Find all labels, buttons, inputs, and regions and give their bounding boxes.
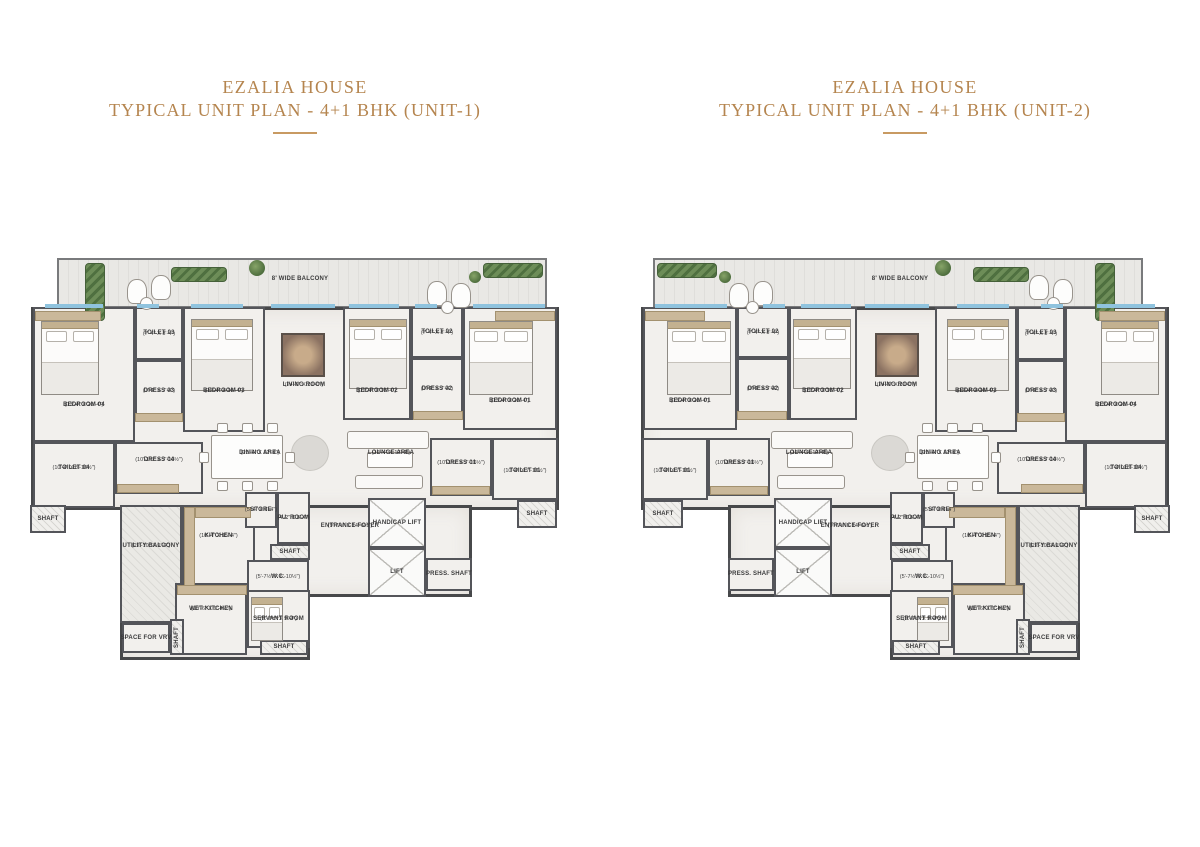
bed-part: [474, 331, 498, 342]
room-toilet-02: [411, 307, 463, 358]
bed-part: [981, 329, 1004, 340]
room-shaft-vert: [1016, 619, 1030, 655]
counter-wardrobe: [117, 484, 179, 493]
balcony-table: [746, 301, 759, 314]
balcony-chair: [451, 283, 471, 308]
room-toilet-01: [492, 438, 558, 500]
counter-wardrobe: [432, 486, 490, 495]
tv-feature-wall: [281, 333, 325, 377]
plan-subtitle: TYPICAL UNIT PLAN - 4+1 BHK (UNIT-2): [635, 99, 1175, 122]
counter-wardrobe: [495, 311, 555, 321]
bed-part: [825, 329, 846, 340]
bed-part: [470, 362, 532, 394]
dining-chair: [242, 423, 253, 433]
plan-subtitle: TYPICAL UNIT PLAN - 4+1 BHK (UNIT-1): [25, 99, 565, 122]
room-toilet-01: [642, 438, 708, 500]
window-glazing: [1097, 304, 1155, 308]
room-shaft-left: [1134, 505, 1170, 533]
room-lift: [774, 548, 832, 597]
counter-wardrobe: [1099, 311, 1165, 321]
bed: [1101, 321, 1159, 395]
dining-table: [211, 435, 283, 479]
rug: [291, 435, 329, 471]
dining-chair: [922, 423, 933, 433]
dining-chair: [267, 423, 278, 433]
dining-chair: [242, 481, 253, 491]
room-pu-room: [277, 492, 310, 544]
bed-part: [42, 322, 98, 329]
bed-part: [73, 331, 94, 342]
balcony-table: [441, 301, 454, 314]
room-shaft-right: [643, 500, 683, 528]
bed-part: [350, 358, 406, 388]
dining-chair: [972, 481, 983, 491]
window-glazing: [473, 304, 545, 308]
room-utility-balcony: [120, 505, 182, 623]
bed-part: [350, 320, 406, 327]
sofa: [771, 431, 853, 449]
window-glazing: [45, 304, 103, 308]
window-glazing: [415, 304, 437, 308]
title-divider: [273, 132, 317, 134]
tree: [249, 260, 265, 276]
coffee-table: [787, 452, 833, 468]
counter-wardrobe: [953, 585, 1023, 595]
dining-chair: [217, 423, 228, 433]
sofa: [777, 475, 845, 489]
plan-panel-unit-1: EZALIA HOUSE TYPICAL UNIT PLAN - 4+1 BHK…: [25, 0, 565, 847]
bed-part: [794, 358, 850, 388]
floor-plan-unit-2: BEDROOM 04(13'-4" X 20'-4")TOILET 03(7'-…: [635, 255, 1175, 660]
window-glazing: [655, 304, 727, 308]
counter-wardrobe: [35, 311, 101, 321]
floor-plan-sheet: { "colors":{"title_gold":"#b5854f","wall…: [0, 0, 1200, 847]
balcony-chair: [151, 275, 171, 300]
bed-part: [252, 598, 282, 605]
room-toilet-03: [1017, 307, 1065, 360]
bed-part: [46, 331, 67, 342]
window-glazing: [1041, 304, 1063, 308]
room-toilet-04: [1085, 442, 1167, 508]
room-shaft-left: [30, 505, 66, 533]
balcony-chair: [1029, 275, 1049, 300]
window-glazing: [137, 304, 159, 308]
counter-wardrobe: [135, 413, 183, 422]
bed-part: [254, 607, 265, 618]
room-wc: [891, 560, 953, 594]
bed: [917, 597, 949, 641]
counter-wardrobe: [949, 507, 1005, 518]
sofa: [355, 475, 423, 489]
dining-chair: [972, 423, 983, 433]
room-shaft-bottom: [260, 640, 308, 655]
plan-title: EZALIA HOUSE: [635, 76, 1175, 99]
bed-part: [1102, 362, 1158, 394]
sofa: [347, 431, 429, 449]
planter-hedge: [483, 263, 543, 278]
window-glazing: [865, 304, 929, 308]
bed-part: [952, 329, 975, 340]
counter-wardrobe: [1017, 413, 1065, 422]
bed-part: [1106, 331, 1127, 342]
bed-part: [948, 359, 1008, 390]
window-glazing: [349, 304, 399, 308]
bed-part: [702, 331, 726, 342]
room-toilet-04: [33, 442, 115, 508]
bed-part: [918, 622, 948, 640]
plan-panel-unit-2: EZALIA HOUSE TYPICAL UNIT PLAN - 4+1 BHK…: [635, 0, 1175, 847]
tree: [935, 260, 951, 276]
room-toilet-03: [135, 307, 183, 360]
bed-part: [381, 329, 402, 340]
room-space-for-vrv: [1030, 623, 1078, 653]
dining-chair: [285, 452, 295, 463]
room-pu-room: [890, 492, 923, 544]
floor-plan-unit-1: BEDROOM 04(13'-4" X 20'-4")TOILET 03(7'-…: [25, 255, 565, 660]
dining-chair: [199, 452, 209, 463]
room-press-shaft: [728, 558, 774, 591]
dining-chair: [267, 481, 278, 491]
room-shaft-vert: [170, 619, 184, 655]
rug: [871, 435, 909, 471]
counter-wardrobe: [1005, 507, 1016, 587]
title-divider: [883, 132, 927, 134]
room-handicap-lift: [368, 498, 426, 548]
room-shaft-right: [517, 500, 557, 528]
plan-title: EZALIA HOUSE: [25, 76, 565, 99]
dining-chair: [947, 423, 958, 433]
bed-part: [196, 329, 219, 340]
dining-chair: [947, 481, 958, 491]
bed: [191, 319, 253, 391]
room-space-for-vrv: [122, 623, 170, 653]
counter-wardrobe: [413, 411, 463, 420]
bed: [349, 319, 407, 389]
bed-part: [948, 320, 1008, 327]
dining-chair: [922, 481, 933, 491]
plan-title-block: EZALIA HOUSE TYPICAL UNIT PLAN - 4+1 BHK…: [25, 76, 565, 134]
bed-part: [192, 320, 252, 327]
dining-chair: [217, 481, 228, 491]
room-toilet-02: [737, 307, 789, 358]
bed-part: [918, 598, 948, 605]
bed: [793, 319, 851, 389]
bed-part: [269, 607, 280, 618]
tree: [719, 271, 731, 283]
bed-part: [668, 362, 730, 394]
planter-hedge: [171, 267, 227, 282]
room-wc: [247, 560, 309, 594]
bed-part: [354, 329, 375, 340]
room-shaft-bottom: [892, 640, 940, 655]
room-utility-balcony: [1018, 505, 1080, 623]
room-lift: [368, 548, 426, 597]
room-handicap-lift: [774, 498, 832, 548]
bed-part: [1102, 322, 1158, 329]
bed-part: [225, 329, 248, 340]
counter-wardrobe: [737, 411, 787, 420]
room-shaft-mid: [890, 544, 930, 560]
tree: [469, 271, 481, 283]
window-glazing: [801, 304, 851, 308]
bed-part: [672, 331, 696, 342]
counter-wardrobe: [184, 507, 195, 587]
counter-wardrobe: [645, 311, 705, 321]
bed-part: [42, 362, 98, 394]
planter-hedge: [657, 263, 717, 278]
counter-wardrobe: [195, 507, 251, 518]
counter-wardrobe: [177, 585, 247, 595]
counter-wardrobe: [1021, 484, 1083, 493]
bed-part: [935, 607, 946, 618]
bed-part: [1133, 331, 1154, 342]
dining-chair: [991, 452, 1001, 463]
window-glazing: [957, 304, 1009, 308]
plan-title-block: EZALIA HOUSE TYPICAL UNIT PLAN - 4+1 BHK…: [635, 76, 1175, 134]
tv-feature-wall: [875, 333, 919, 377]
bed-part: [252, 622, 282, 640]
window-glazing: [191, 304, 243, 308]
dining-table: [917, 435, 989, 479]
bed-part: [920, 607, 931, 618]
room-shaft-mid: [270, 544, 310, 560]
bed: [41, 321, 99, 395]
room-press-shaft: [426, 558, 472, 591]
window-glazing: [271, 304, 335, 308]
bed: [947, 319, 1009, 391]
bed: [251, 597, 283, 641]
counter-wardrobe: [710, 486, 768, 495]
bed-part: [668, 322, 730, 329]
bed-part: [798, 329, 819, 340]
bed-part: [470, 322, 532, 329]
bed-part: [794, 320, 850, 327]
bed: [469, 321, 533, 395]
coffee-table: [367, 452, 413, 468]
planter-hedge: [973, 267, 1029, 282]
dining-chair: [905, 452, 915, 463]
bed-part: [192, 359, 252, 390]
bed: [667, 321, 731, 395]
bed-part: [504, 331, 528, 342]
window-glazing: [763, 304, 785, 308]
